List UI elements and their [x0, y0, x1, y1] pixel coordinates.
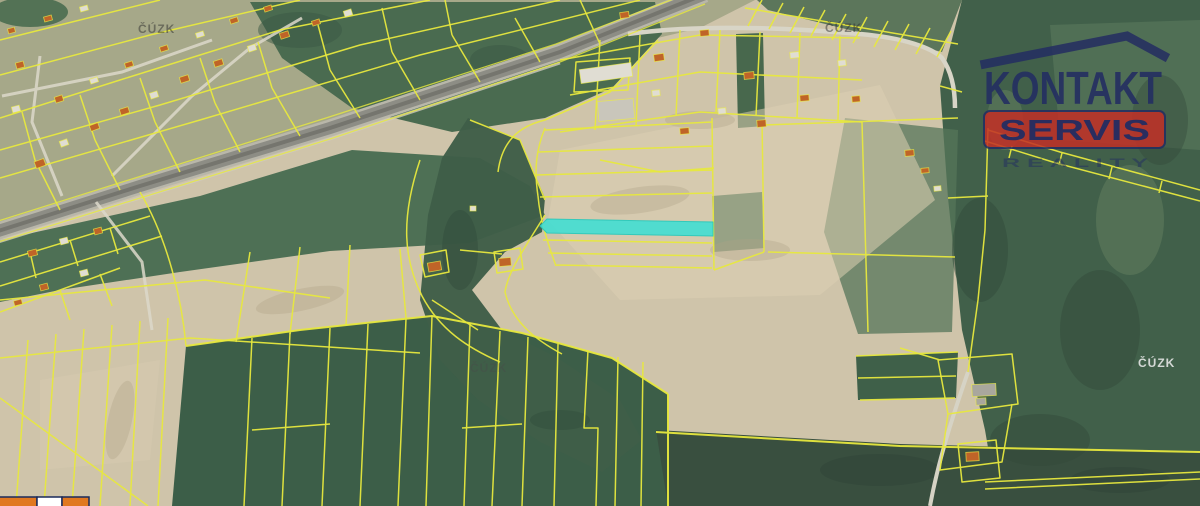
- building-footprint: [972, 383, 997, 396]
- cuzk-watermark: ČÚZK: [1138, 355, 1175, 370]
- building-footprint: [427, 261, 441, 272]
- cuzk-watermark: ČÚZK: [138, 21, 175, 36]
- building-footprint: [790, 52, 799, 59]
- cuzk-watermark: ČÚZK: [825, 20, 862, 35]
- building-footprint: [700, 30, 709, 37]
- building-footprint: [976, 398, 986, 406]
- building-footprint: [718, 108, 726, 115]
- highlighted-parcel[interactable]: [540, 219, 713, 236]
- building-footprint: [852, 96, 860, 103]
- building-footprint: [757, 120, 767, 128]
- building-footprint: [499, 257, 512, 266]
- scale-bar: [0, 497, 89, 506]
- aerial-map[interactable]: ČÚZK ČÚZK ČÚZK ČÚZK KONTAKT SERVIS R E A…: [0, 0, 1200, 506]
- building-footprint: [597, 98, 635, 121]
- logo-servis-text: SERVIS: [999, 115, 1150, 147]
- cuzk-watermark: ČÚZK: [470, 360, 507, 375]
- building-footprint: [905, 150, 914, 157]
- building-footprint: [470, 206, 476, 211]
- building-footprint: [680, 128, 689, 135]
- building-footprint: [966, 452, 979, 462]
- logo-kontakt-text: KONTAKT: [984, 62, 1162, 114]
- building-footprint: [744, 72, 755, 80]
- scale-bar-segment: [37, 497, 62, 506]
- building-footprint: [838, 60, 846, 67]
- building-footprint: [934, 186, 941, 192]
- building-footprint: [800, 95, 809, 102]
- map-screenshot: ČÚZK ČÚZK ČÚZK ČÚZK KONTAKT SERVIS R E A…: [0, 0, 1200, 506]
- building-footprint: [620, 11, 630, 18]
- scale-bar-segment: [0, 497, 37, 506]
- building-footprint: [652, 90, 660, 97]
- logo-reality-text: R E A L I T Y: [1002, 156, 1148, 170]
- scale-bar-segment: [62, 497, 89, 506]
- building-footprint: [654, 53, 665, 61]
- building-footprint: [921, 168, 929, 174]
